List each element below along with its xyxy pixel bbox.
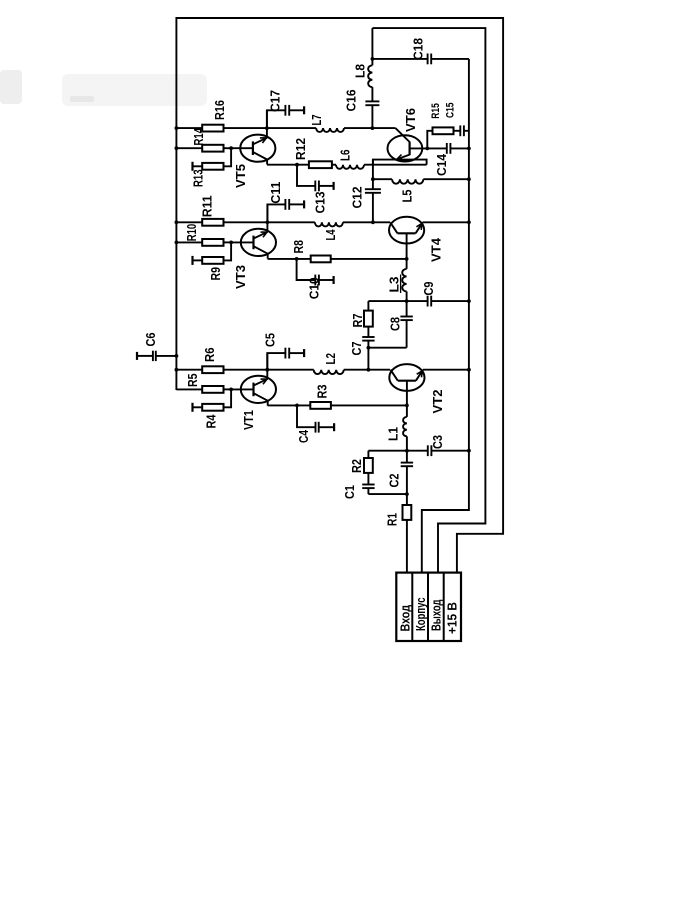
svg-text:R1: R1 xyxy=(386,513,400,526)
svg-text:C16: C16 xyxy=(345,89,359,111)
svg-text:C15: C15 xyxy=(445,103,457,119)
svg-text:R4: R4 xyxy=(205,414,219,428)
svg-text:C17: C17 xyxy=(269,90,283,112)
svg-text:C1: C1 xyxy=(343,485,357,499)
svg-text:VT4: VT4 xyxy=(430,238,444,262)
svg-text:R16: R16 xyxy=(213,100,227,120)
svg-text:L4: L4 xyxy=(324,229,338,240)
svg-text:Выход: Выход xyxy=(429,599,444,631)
svg-text:L1: L1 xyxy=(387,427,401,441)
svg-text:L8: L8 xyxy=(354,64,368,78)
svg-text:R10: R10 xyxy=(185,224,199,242)
svg-text:+15 В: +15 В xyxy=(445,602,460,634)
svg-text:C7: C7 xyxy=(350,341,364,355)
svg-text:C11: C11 xyxy=(269,182,283,204)
svg-text:L7: L7 xyxy=(310,114,324,125)
svg-text:R9: R9 xyxy=(209,267,223,281)
svg-text:L2: L2 xyxy=(324,353,338,365)
svg-text:R2: R2 xyxy=(350,459,364,473)
svg-text:C9: C9 xyxy=(422,281,436,295)
svg-text:R7: R7 xyxy=(351,313,365,327)
svg-text:VT2: VT2 xyxy=(431,389,445,413)
svg-text:R14: R14 xyxy=(192,128,206,146)
svg-text:C13: C13 xyxy=(314,191,328,213)
svg-text:VT3: VT3 xyxy=(234,265,248,289)
svg-text:R6: R6 xyxy=(203,347,217,362)
svg-text:L3: L3 xyxy=(388,276,402,292)
svg-text:C4: C4 xyxy=(297,430,311,443)
svg-text:R5: R5 xyxy=(186,373,200,387)
svg-text:VT1: VT1 xyxy=(242,410,256,430)
svg-text:R15: R15 xyxy=(430,103,442,119)
svg-text:R8: R8 xyxy=(292,240,306,254)
svg-text:VT5: VT5 xyxy=(234,164,248,188)
svg-text:C18: C18 xyxy=(412,38,426,60)
svg-text:Корпус: Корпус xyxy=(413,598,428,632)
svg-text:L6: L6 xyxy=(339,149,353,161)
svg-text:C14: C14 xyxy=(435,154,449,176)
svg-text:C10: C10 xyxy=(308,277,322,299)
svg-text:C3: C3 xyxy=(431,435,445,449)
svg-text:R11: R11 xyxy=(200,195,214,217)
svg-text:VT6: VT6 xyxy=(404,108,418,132)
svg-text:C6: C6 xyxy=(144,332,158,346)
svg-text:L5: L5 xyxy=(401,189,415,202)
svg-text:R13: R13 xyxy=(192,169,206,187)
svg-text:R3: R3 xyxy=(316,384,330,398)
svg-text:C8: C8 xyxy=(389,317,403,331)
svg-text:Вход: Вход xyxy=(398,604,413,631)
svg-text:C2: C2 xyxy=(388,473,402,487)
svg-text:R12: R12 xyxy=(294,138,308,160)
svg-text:C12: C12 xyxy=(351,186,365,208)
svg-text:C5: C5 xyxy=(263,333,277,347)
